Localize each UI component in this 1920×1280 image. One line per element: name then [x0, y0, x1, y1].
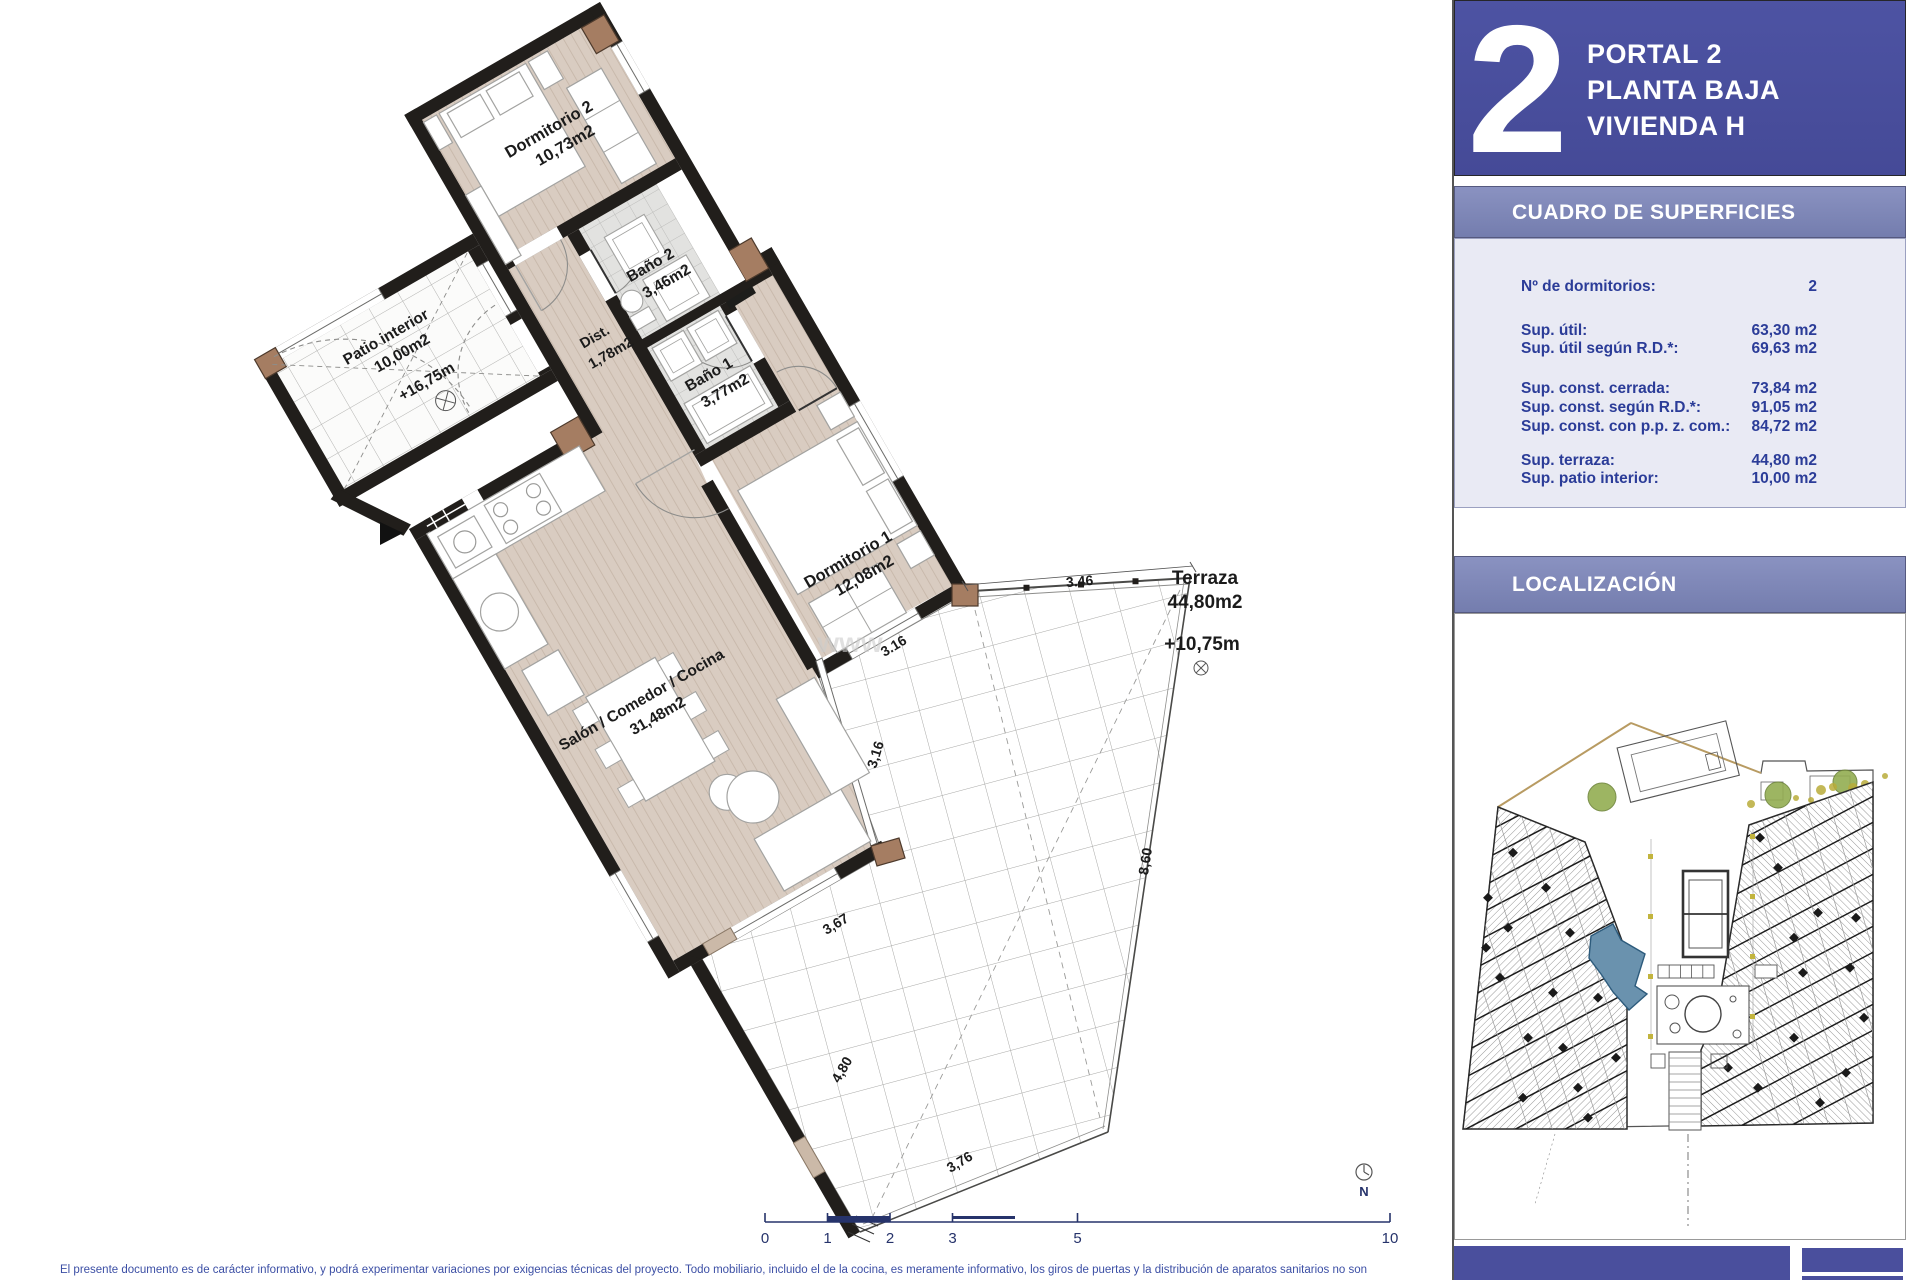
svg-text:www: www	[816, 627, 883, 658]
svg-text:5: 5	[1073, 1230, 1081, 1247]
svg-text:+10,75m: +10,75m	[1164, 634, 1240, 655]
svg-text:0: 0	[761, 1230, 769, 1247]
svg-text:10: 10	[1382, 1230, 1399, 1247]
svg-text:1: 1	[823, 1230, 831, 1247]
svg-text:44,80m2: 44,80m2	[1167, 592, 1242, 613]
svg-text:Terraza: Terraza	[1172, 568, 1239, 589]
svg-text:3: 3	[948, 1230, 956, 1247]
svg-text:8,60: 8,60	[1135, 846, 1155, 876]
svg-text:2: 2	[886, 1230, 894, 1247]
svg-text:N: N	[1359, 1184, 1368, 1199]
